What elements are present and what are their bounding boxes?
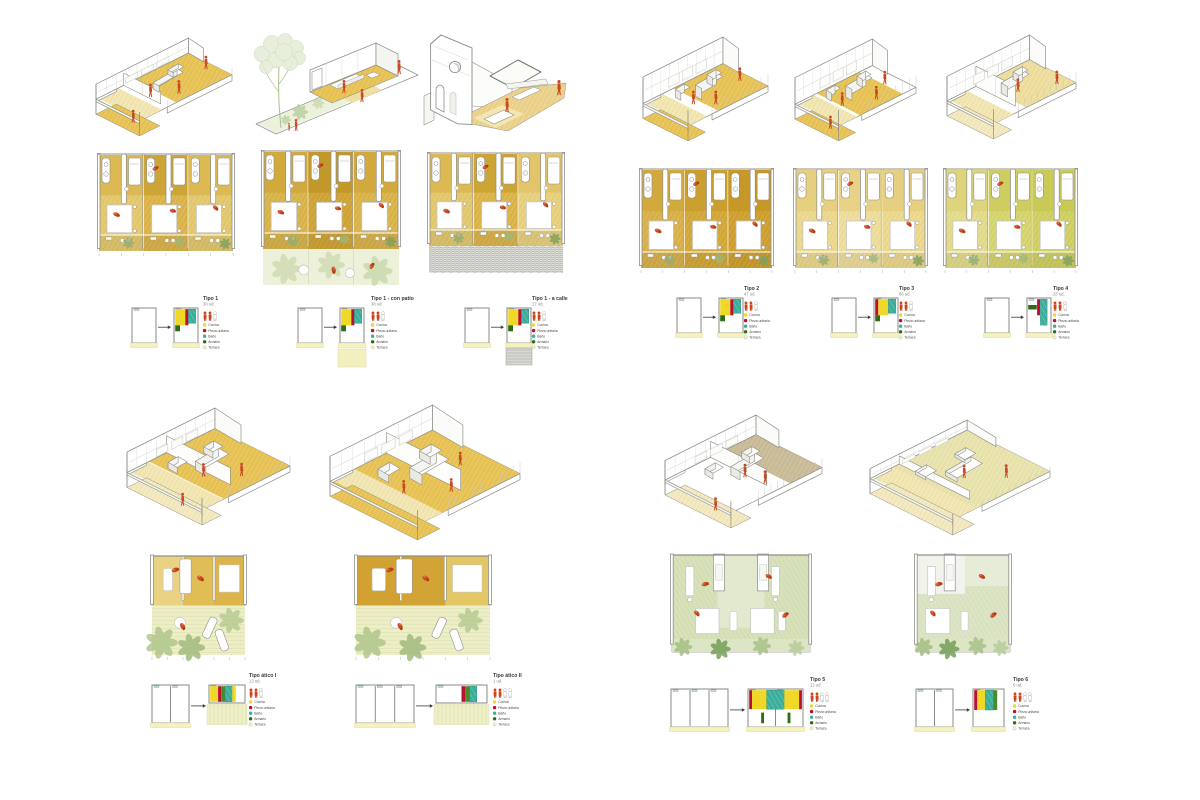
svg-text:30 ud.: 30 ud.	[203, 302, 215, 307]
svg-text:Pieza unitaria: Pieza unitaria	[376, 329, 397, 333]
svg-text:Armario: Armario	[537, 340, 549, 344]
svg-text:Pieza unitaria: Pieza unitaria	[1018, 710, 1039, 714]
svg-text:Baño: Baño	[376, 334, 384, 338]
svg-text:Cocina: Cocina	[749, 313, 760, 317]
svg-text:Pieza unitaria: Pieza unitaria	[749, 319, 770, 323]
svg-text:Cocina: Cocina	[254, 700, 265, 704]
svg-text:Terraza: Terraza	[904, 336, 915, 340]
svg-text:Armario: Armario	[749, 330, 761, 334]
svg-text:6 ud.: 6 ud.	[1013, 683, 1022, 688]
svg-text:Baño: Baño	[208, 334, 216, 338]
svg-text:12 ud.: 12 ud.	[810, 683, 822, 688]
svg-text:Pieza unitaria: Pieza unitaria	[537, 329, 558, 333]
svg-text:1 ud.: 1 ud.	[493, 679, 502, 684]
svg-text:Cocina: Cocina	[498, 700, 509, 704]
svg-text:Pieza unitaria: Pieza unitaria	[254, 706, 275, 710]
svg-text:Baño: Baño	[815, 715, 823, 719]
svg-text:Armario: Armario	[376, 340, 388, 344]
svg-text:Baño: Baño	[498, 711, 506, 715]
svg-text:Baño: Baño	[537, 334, 545, 338]
svg-text:Baño: Baño	[749, 324, 757, 328]
svg-text:Pieza unitaria: Pieza unitaria	[498, 706, 519, 710]
svg-text:13 ud.: 13 ud.	[249, 679, 261, 684]
svg-text:Terraza: Terraza	[815, 727, 826, 731]
svg-text:Armario: Armario	[1058, 330, 1070, 334]
svg-text:Pieza unitaria: Pieza unitaria	[1058, 319, 1079, 323]
svg-text:17 ud.: 17 ud.	[532, 302, 544, 307]
svg-text:Terraza: Terraza	[749, 336, 760, 340]
svg-text:Armario: Armario	[208, 340, 220, 344]
svg-text:Cocina: Cocina	[815, 704, 826, 708]
svg-text:Cocina: Cocina	[1058, 313, 1069, 317]
svg-text:28 ud.: 28 ud.	[1053, 292, 1065, 297]
svg-text:Terraza: Terraza	[1058, 336, 1069, 340]
svg-text:Terraza: Terraza	[208, 346, 219, 350]
svg-text:Terraza: Terraza	[376, 346, 387, 350]
svg-text:Terraza: Terraza	[1018, 727, 1029, 731]
svg-text:Armario: Armario	[815, 721, 827, 725]
svg-text:Pieza unitaria: Pieza unitaria	[815, 710, 836, 714]
svg-text:Pieza unitaria: Pieza unitaria	[904, 319, 925, 323]
svg-text:Cocina: Cocina	[376, 323, 387, 327]
svg-text:Armario: Armario	[904, 330, 916, 334]
svg-text:Armario: Armario	[498, 717, 510, 721]
svg-text:47 ud.: 47 ud.	[744, 292, 756, 297]
svg-text:Armario: Armario	[254, 717, 266, 721]
svg-text:Baño: Baño	[1018, 715, 1026, 719]
svg-text:Cocina: Cocina	[208, 323, 219, 327]
svg-text:Terraza: Terraza	[537, 346, 548, 350]
svg-text:Cocina: Cocina	[904, 313, 915, 317]
svg-text:Baño: Baño	[254, 711, 262, 715]
svg-text:Pieza unitaria: Pieza unitaria	[208, 329, 229, 333]
svg-text:Baño: Baño	[904, 324, 912, 328]
svg-text:Cocina: Cocina	[1018, 704, 1029, 708]
svg-text:66 ud.: 66 ud.	[899, 292, 911, 297]
svg-text:Baño: Baño	[1058, 324, 1066, 328]
svg-text:Terraza: Terraza	[254, 723, 265, 727]
svg-text:Terraza: Terraza	[498, 723, 509, 727]
svg-text:Armario: Armario	[1018, 721, 1030, 725]
svg-text:Cocina: Cocina	[537, 323, 548, 327]
svg-text:38 ud.: 38 ud.	[371, 302, 383, 307]
